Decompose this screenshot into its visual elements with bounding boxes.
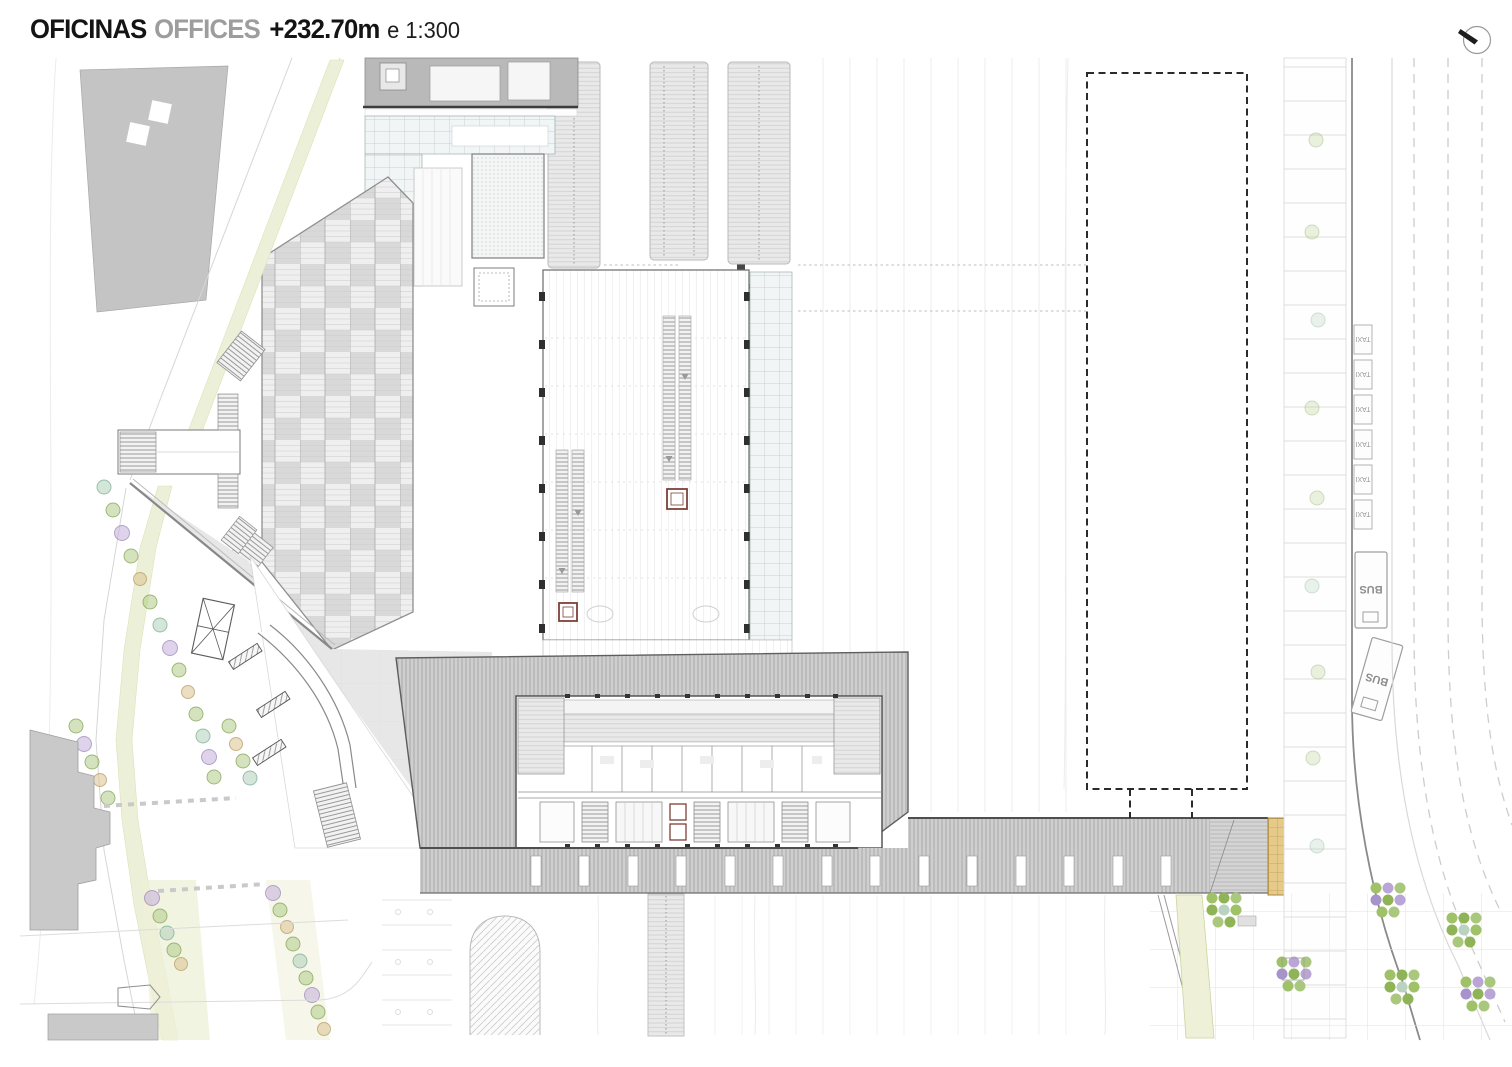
north-arrow-icon	[1458, 27, 1491, 54]
bus-label: BUS	[1359, 583, 1382, 595]
parking-area	[382, 900, 540, 1035]
bus-bay: BUS	[1351, 637, 1403, 721]
sheet-title: OFICINASOFFICES+232.70me 1:300	[30, 14, 460, 45]
bus-bay: BUS	[1355, 552, 1387, 628]
elevator	[667, 489, 687, 509]
taxi-label: TAXI	[1355, 475, 1370, 482]
taxi-label: TAXI	[1355, 370, 1370, 377]
offices-building	[396, 652, 908, 848]
skylight	[192, 598, 235, 659]
taxi-label: TAXI	[1355, 440, 1370, 447]
taxi-label: TAXI	[1355, 335, 1370, 342]
south-plaza	[1150, 883, 1512, 1041]
station-hall	[539, 270, 792, 656]
site-plan-drawing: TAXI TAXI TAXI TAXI TAXI TAXI BUS BUS	[0, 0, 1512, 1067]
taxi-label: TAXI	[1355, 510, 1370, 517]
title-elevation: +232.70m	[269, 14, 379, 45]
road-lane-lines	[1392, 58, 1512, 1040]
footbridge	[118, 331, 265, 554]
elevator	[559, 603, 577, 621]
dashed-volume-outline	[1087, 73, 1247, 818]
title-scale: e 1:300	[387, 17, 460, 44]
office-core-rooms	[540, 802, 850, 842]
taxi-label: TAXI	[1355, 405, 1370, 412]
taxi-bays: TAXI TAXI TAXI TAXI TAXI TAXI	[1354, 325, 1372, 529]
title-primary: OFICINAS	[30, 14, 146, 45]
plan-sheet: TAXI TAXI TAXI TAXI TAXI TAXI BUS BUS	[0, 0, 1512, 1067]
title-secondary: OFFICES	[154, 14, 260, 45]
low-building	[48, 1014, 158, 1040]
